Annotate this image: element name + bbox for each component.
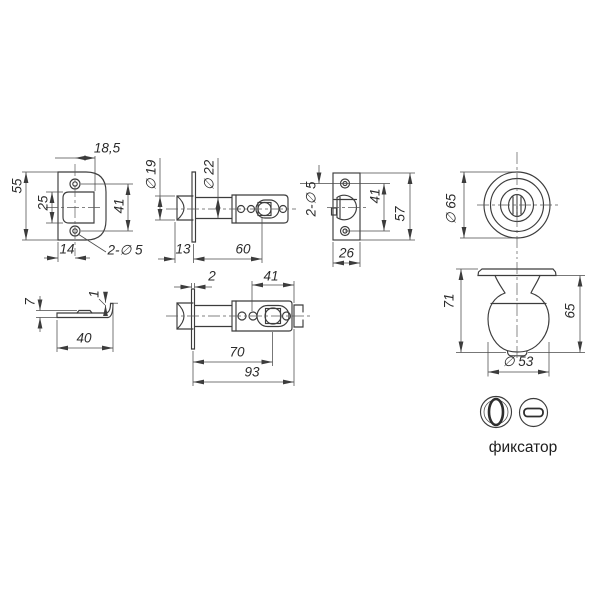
emergency-slot-icon: [520, 399, 548, 427]
dim-latch-head-dia: ∅ 19: [144, 159, 159, 190]
dim-edge-width: 40: [76, 331, 92, 346]
drawing-sheet: 18,5 55 25 41 14 2-∅ 5: [0, 0, 600, 600]
fixator-legend: фиксатор: [481, 397, 558, 457]
latch-side-view: ∅ 19 ∅ 22 13 60: [144, 158, 296, 263]
dim-latch-tube-len: 60: [235, 242, 251, 257]
faceplate-front-view: 18,5 55 25 41 14 2-∅ 5: [10, 141, 143, 262]
technical-drawing: 18,5 55 25 41 14 2-∅ 5: [0, 0, 600, 600]
dim-strike-height: 57: [393, 206, 408, 222]
latch-side-outline: [177, 172, 288, 242]
dim-faceplate-holes-note: 2-∅ 5: [106, 243, 143, 258]
dim-latch-total-len: 93: [244, 365, 260, 380]
dim-faceplate-hole-span: 41: [112, 198, 127, 213]
dim-latch-plate-thickness: 2: [207, 269, 216, 284]
dim-strike-holes-note: 2-∅ 5: [304, 181, 319, 218]
dim-strike-hole-span: 41: [368, 188, 383, 203]
knob-side-view: 71 65 ∅ 53: [442, 262, 585, 377]
knob-front-view: ∅ 65: [444, 152, 558, 259]
dim-edge-thickness: 1: [87, 290, 102, 298]
turn-button-icon: [481, 397, 512, 428]
strike-outline: [332, 173, 361, 240]
faceplate-outline: [58, 172, 106, 240]
faceplate-edge-view: 7 1 40: [23, 290, 118, 352]
dim-faceplate-top-width: 18,5: [94, 141, 121, 156]
dim-faceplate-hole-offset: 14: [59, 242, 74, 257]
latch-assembly-top-view: 2 41 70 93: [166, 269, 312, 386]
dim-faceplate-cutout: 25: [36, 195, 51, 212]
fixator-label: фиксатор: [489, 439, 558, 456]
latch-assembly-outline: [177, 289, 303, 349]
dim-latch-spindle-span: 41: [263, 269, 278, 284]
dim-faceplate-height: 55: [10, 178, 25, 194]
dim-latch-spindle-dist: 70: [229, 345, 245, 360]
dim-knob-front-dia: ∅ 65: [444, 193, 459, 224]
dim-latch-tip-len: 13: [175, 242, 191, 257]
dim-knob-dia: ∅ 53: [503, 354, 534, 369]
strike-plate-view: 2-∅ 5 41 57 26: [300, 165, 415, 267]
dim-knob-height: 65: [563, 303, 578, 319]
dim-latch-tube-dia: ∅ 22: [202, 159, 217, 190]
dim-strike-width: 26: [338, 246, 355, 261]
dim-knob-total-height: 71: [442, 293, 457, 308]
dim-edge-height: 7: [23, 298, 38, 306]
